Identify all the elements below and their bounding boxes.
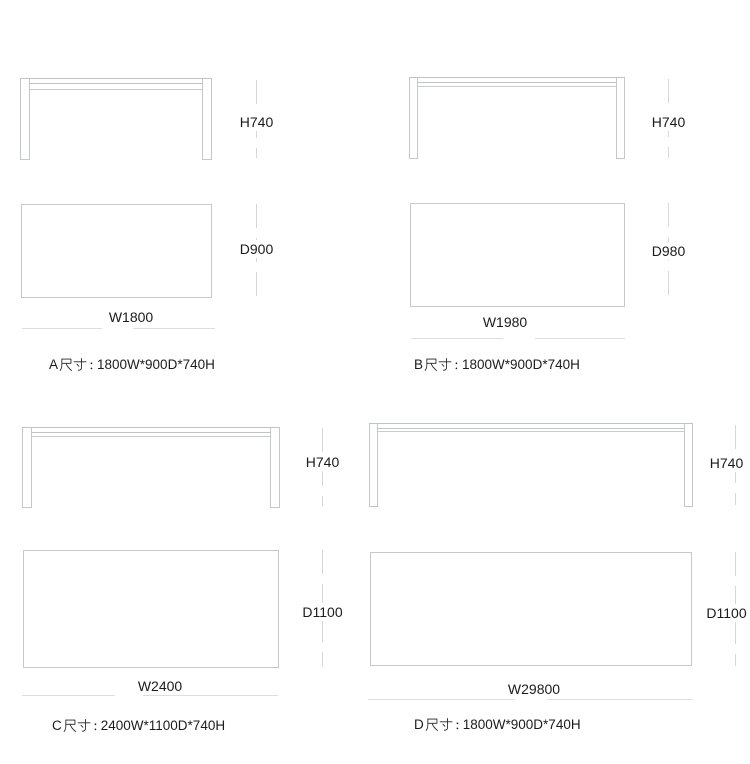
table-leg-right [684,424,693,507]
caption: A 1800W*900D*740H [49,357,215,372]
height-dim-label: H740 [706,454,747,472]
size-word-glyph [63,718,100,733]
apron-line [30,89,202,90]
tabletop-edge [22,427,280,433]
depth-dim-line: D1100 [735,552,736,666]
table-top-view [23,550,279,668]
width-dim-line-right [535,338,625,339]
height-dim-line: H740 [735,425,736,505]
depth-dim-label: D1100 [702,604,750,622]
size-word-glyph [424,357,461,372]
height-dim-label: H740 [648,113,689,131]
table-front-view [409,77,625,159]
height-dim-line: H740 [256,80,257,158]
caption-prefix: B [414,358,423,372]
caption-dimensions: 2400W*1100D*740H [101,719,225,733]
depth-dim-line: D980 [668,203,669,305]
table-front-view [22,427,280,508]
depth-dim-line: D1100 [322,550,323,667]
size-word-glyph [59,357,96,372]
width-dim-line-right [547,699,693,700]
width-dim-line-left [22,695,115,696]
table-top-view [370,552,692,666]
width-dim-label: W2400 [120,679,200,693]
height-dim-label: H740 [302,453,343,471]
depth-dim-label: D900 [236,240,277,258]
width-dim-line-right [133,328,215,329]
caption-prefix: C [52,719,62,733]
table-leg-right [270,428,280,508]
apron-line [418,86,616,87]
table-leg-right [202,79,212,160]
table-leg-left [22,428,32,508]
table-leg-left [20,79,30,160]
depth-dim-line: D900 [256,204,257,297]
depth-dim-label: D1100 [298,603,346,621]
dimension-drawing-sheet: H740 D900 W1800 A 1800W*900D*740H H740 [0,0,750,764]
depth-dim-label: D980 [648,242,689,260]
caption-dimensions: 1800W*900D*740H [462,358,580,372]
caption-dimensions: 1800W*900D*740H [97,358,215,372]
table-front-view [369,423,693,507]
width-dim-label: W1980 [465,315,545,329]
caption-prefix: A [49,358,58,372]
table-front-view [20,78,212,160]
tabletop-edge [20,78,212,84]
caption: C 2400W*1100D*740H [52,718,225,733]
caption-dimensions: 1800W*900D*740H [463,718,581,732]
width-dim-line-left [368,699,515,700]
size-word-glyph [425,717,462,732]
tabletop-edge [369,423,693,429]
caption-prefix: D [414,718,424,732]
apron-line [32,436,270,437]
apron-line [378,431,684,432]
table-top-view [410,203,625,307]
height-dim-line: H740 [322,428,323,506]
width-dim-line-left [411,338,503,339]
width-dim-line-right [143,695,278,696]
width-dim-label: W1800 [91,310,171,324]
width-dim-label: W29800 [494,682,574,696]
caption: B 1800W*900D*740H [414,357,580,372]
height-dim-label: H740 [236,113,277,131]
table-leg-left [409,78,418,159]
table-leg-right [616,78,625,159]
tabletop-edge [409,77,625,83]
caption: D 1800W*900D*740H [414,717,581,732]
height-dim-line: H740 [668,79,669,158]
width-dim-line-left [22,328,102,329]
table-top-view [21,204,212,298]
table-leg-left [369,424,378,507]
